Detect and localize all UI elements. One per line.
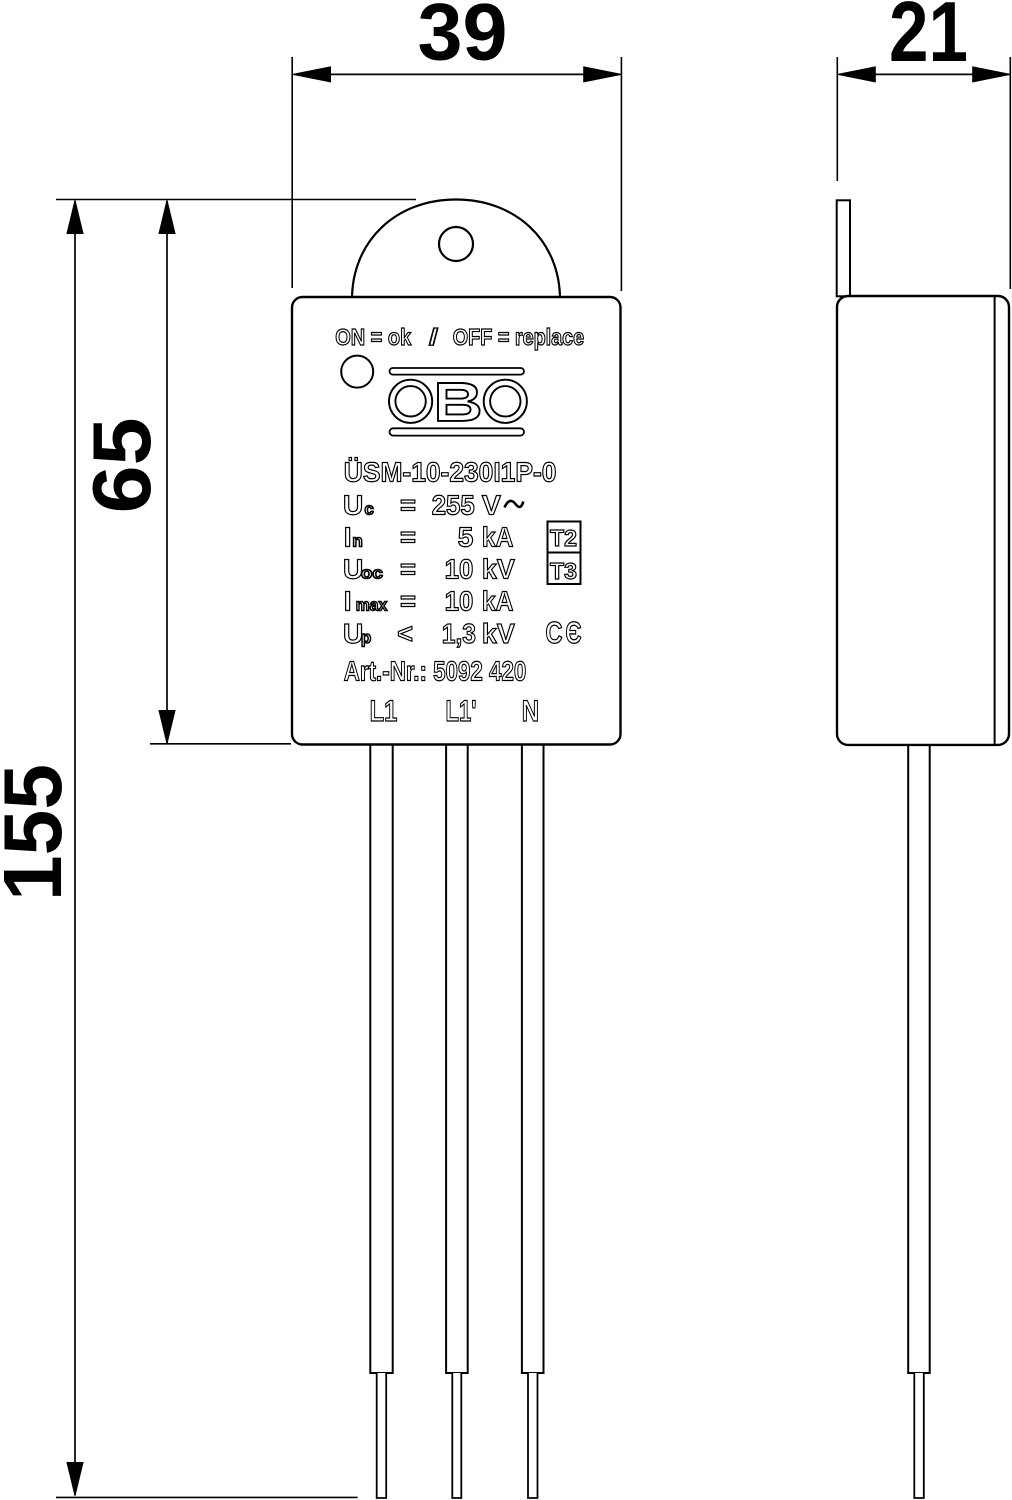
svg-text:10: 10 [445, 554, 474, 585]
svg-text:kV: kV [482, 554, 515, 585]
svg-text:T2: T2 [550, 525, 577, 551]
svg-text:max: max [356, 596, 388, 615]
svg-text:=: = [400, 490, 416, 521]
svg-text:155: 155 [0, 764, 79, 901]
svg-text:kA: kA [482, 522, 514, 553]
svg-text:U: U [343, 490, 363, 521]
svg-text:65: 65 [75, 417, 168, 513]
svg-text:Art.-Nr.: 5092 420: Art.-Nr.: 5092 420 [344, 655, 527, 686]
svg-text:21: 21 [889, 0, 968, 80]
svg-text:I: I [344, 522, 352, 553]
svg-text:255: 255 [432, 490, 475, 521]
svg-text:kA: kA [482, 586, 514, 617]
svg-text:=: = [400, 554, 416, 585]
svg-text:p: p [361, 628, 371, 647]
svg-text:Є: Є [566, 615, 582, 650]
svg-text:=: = [400, 586, 416, 617]
svg-text:n: n [352, 532, 362, 551]
svg-text:kV: kV [482, 618, 515, 649]
svg-text:T3: T3 [550, 558, 577, 584]
svg-text:V: V [482, 490, 501, 521]
svg-text:L1: L1 [370, 695, 398, 728]
svg-text:<: < [397, 618, 413, 649]
svg-text:L1': L1' [446, 695, 477, 728]
svg-text:I: I [344, 586, 352, 617]
svg-text:oc: oc [361, 564, 383, 583]
svg-text:c: c [364, 500, 373, 519]
svg-text:10: 10 [445, 586, 474, 617]
svg-text:39: 39 [418, 0, 508, 78]
svg-text:OFF = replace: OFF = replace [453, 324, 584, 350]
svg-text:5: 5 [458, 522, 474, 553]
svg-text:ON = ok: ON = ok [335, 324, 411, 350]
svg-text:C: C [546, 615, 563, 650]
svg-text:ÜSM-10-230I1P-0: ÜSM-10-230I1P-0 [344, 457, 557, 488]
svg-text:=: = [400, 522, 416, 553]
svg-text:/: / [429, 324, 439, 350]
svg-text:N: N [522, 695, 539, 728]
svg-text:1,3: 1,3 [442, 618, 476, 649]
